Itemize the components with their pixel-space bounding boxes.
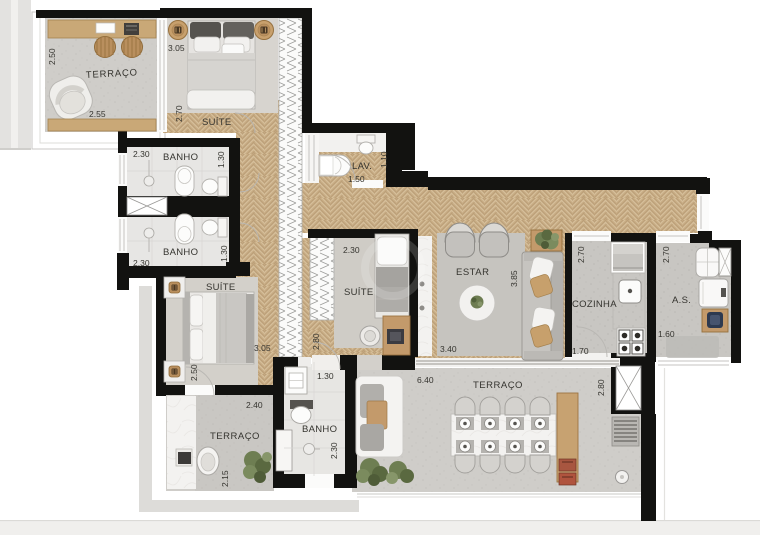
svg-text:1.30: 1.30 xyxy=(216,151,226,168)
svg-text:3.40: 3.40 xyxy=(440,344,457,354)
svg-text:2.80: 2.80 xyxy=(311,333,321,350)
svg-text:2.50: 2.50 xyxy=(47,48,57,65)
svg-text:1.50: 1.50 xyxy=(348,174,365,184)
svg-text:TERRAÇO: TERRAÇO xyxy=(473,380,523,391)
svg-text:2.30: 2.30 xyxy=(329,442,339,459)
svg-text:2.70: 2.70 xyxy=(174,105,184,122)
svg-text:ESTAR: ESTAR xyxy=(456,267,489,278)
svg-text:2.30: 2.30 xyxy=(133,149,150,159)
svg-text:SUÍTE: SUÍTE xyxy=(202,117,231,128)
svg-text:1.30: 1.30 xyxy=(317,371,334,381)
svg-text:2.50: 2.50 xyxy=(189,364,199,381)
svg-text:TERRAÇO: TERRAÇO xyxy=(210,431,260,442)
svg-text:2.15: 2.15 xyxy=(220,470,230,487)
svg-text:2.70: 2.70 xyxy=(576,246,586,263)
svg-text:3.05: 3.05 xyxy=(168,43,185,53)
svg-text:6.40: 6.40 xyxy=(417,375,434,385)
svg-text:SUÍTE: SUÍTE xyxy=(206,282,235,293)
svg-text:2.55: 2.55 xyxy=(89,109,106,119)
svg-text:SUÍTE: SUÍTE xyxy=(344,287,373,298)
svg-text:2.30: 2.30 xyxy=(343,245,360,255)
svg-text:3.85: 3.85 xyxy=(509,270,519,287)
svg-text:BANHO: BANHO xyxy=(163,152,198,163)
svg-text:2.30: 2.30 xyxy=(133,258,150,268)
svg-text:BANHO: BANHO xyxy=(163,247,198,258)
svg-text:2.70: 2.70 xyxy=(661,246,671,263)
svg-text:1.60: 1.60 xyxy=(658,329,675,339)
svg-text:LAV.: LAV. xyxy=(352,161,372,172)
svg-text:1.70: 1.70 xyxy=(572,346,589,356)
svg-text:3.05: 3.05 xyxy=(254,343,271,353)
svg-text:A.S.: A.S. xyxy=(672,295,691,306)
svg-text:COZINHA: COZINHA xyxy=(572,299,617,310)
svg-text:1.30: 1.30 xyxy=(219,245,229,262)
svg-text:1.10: 1.10 xyxy=(379,151,389,168)
svg-text:2.40: 2.40 xyxy=(246,400,263,410)
svg-text:2.80: 2.80 xyxy=(596,379,606,396)
svg-text:BANHO: BANHO xyxy=(302,424,337,435)
